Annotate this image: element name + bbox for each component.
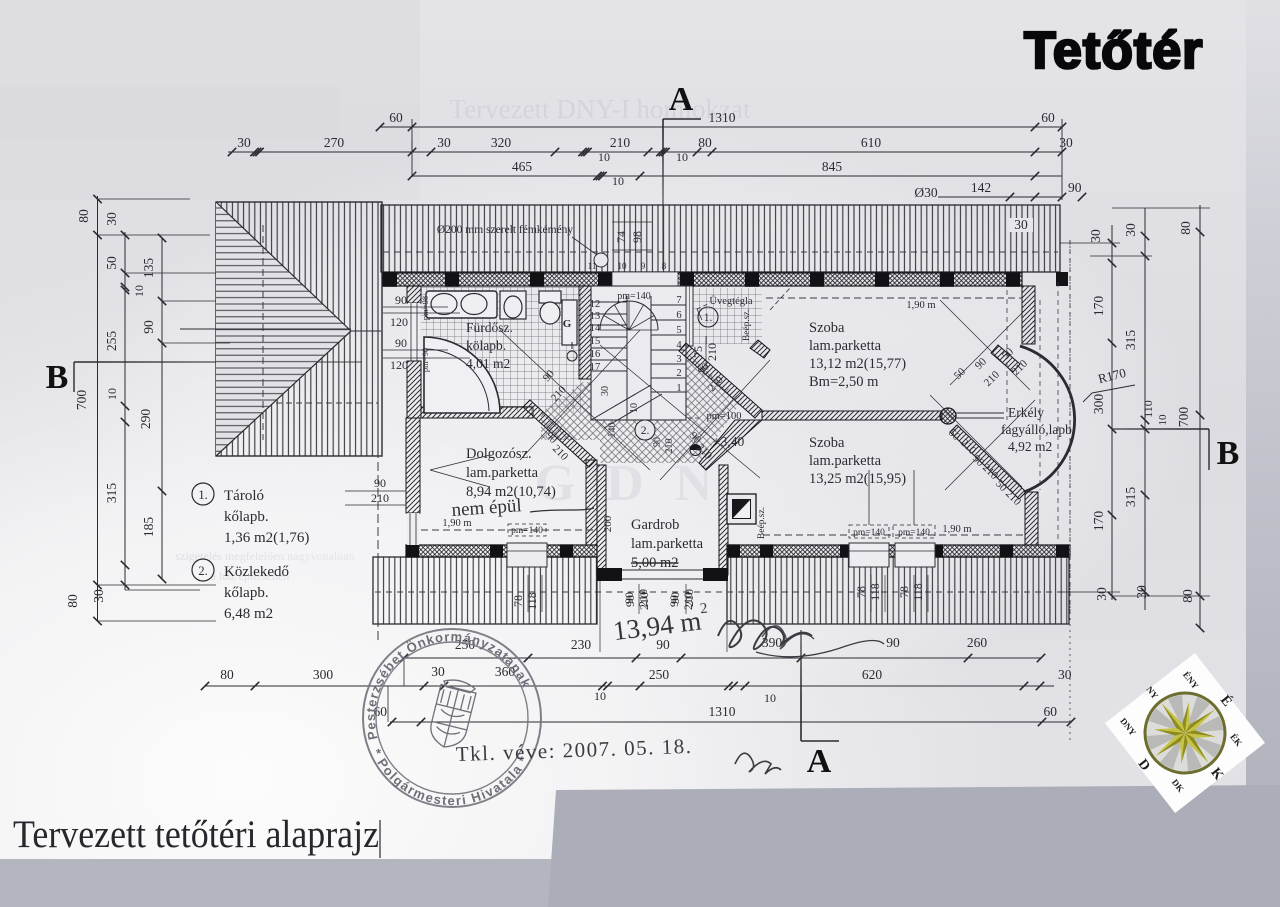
svg-text:210: 210 <box>371 491 389 505</box>
svg-text:30: 30 <box>1088 229 1103 243</box>
svg-text:170: 170 <box>1091 511 1106 532</box>
svg-text:Közlekedő: Közlekedő <box>224 564 289 580</box>
svg-text:Szoba: Szoba <box>809 435 845 451</box>
svg-text:30: 30 <box>237 135 251 150</box>
svg-text:5,00 m2: 5,00 m2 <box>631 555 679 571</box>
svg-text:pm=98: pm=98 <box>420 296 430 320</box>
svg-text:2.: 2. <box>198 564 207 578</box>
svg-text:pm=140: pm=140 <box>853 528 885 538</box>
svg-text:12: 12 <box>590 299 601 310</box>
svg-text:9: 9 <box>641 261 646 271</box>
svg-text:6,48 m2: 6,48 m2 <box>224 606 273 622</box>
svg-text:Ø200 mm szerelt fémkémény: Ø200 mm szerelt fémkémény <box>437 224 574 236</box>
svg-text:98: 98 <box>630 231 644 243</box>
svg-text:10: 10 <box>1157 414 1169 426</box>
svg-text:170: 170 <box>1091 296 1106 317</box>
svg-text:185: 185 <box>141 517 156 538</box>
svg-text:13: 13 <box>590 311 601 322</box>
svg-text:Tervezett DNY-I homlokzat: Tervezett DNY-I homlokzat <box>450 94 751 124</box>
svg-text:2.: 2. <box>641 425 650 437</box>
svg-text:30: 30 <box>1059 135 1073 150</box>
svg-text:10: 10 <box>618 261 628 271</box>
svg-text:1: 1 <box>676 383 681 394</box>
svg-text:620: 620 <box>862 667 883 682</box>
svg-text:142: 142 <box>971 180 991 195</box>
svg-text:30: 30 <box>91 589 106 603</box>
svg-text:80: 80 <box>65 594 80 608</box>
svg-text:80: 80 <box>76 209 91 223</box>
svg-text:10: 10 <box>132 285 146 297</box>
svg-text:845: 845 <box>822 159 843 174</box>
svg-text:30: 30 <box>437 135 451 150</box>
svg-text:30: 30 <box>1134 585 1149 599</box>
svg-text:pm=140: pm=140 <box>511 526 543 536</box>
svg-text:255: 255 <box>104 331 119 352</box>
svg-text:30: 30 <box>104 212 119 226</box>
svg-text:270: 270 <box>324 135 345 150</box>
svg-text:120: 120 <box>390 315 408 329</box>
svg-text:30: 30 <box>1123 223 1138 237</box>
svg-text:50: 50 <box>104 256 119 270</box>
svg-text:610: 610 <box>861 135 882 150</box>
svg-text:118: 118 <box>911 583 925 601</box>
svg-text:17: 17 <box>590 362 601 373</box>
svg-text:210: 210 <box>637 592 651 610</box>
svg-text:30: 30 <box>1094 587 1109 601</box>
svg-text:118: 118 <box>525 592 539 610</box>
svg-text:200: 200 <box>602 515 614 532</box>
svg-text:13,12 m2(15,77): 13,12 m2(15,77) <box>809 356 906 372</box>
svg-text:10: 10 <box>105 388 119 400</box>
svg-text:fagyálló,lapb.: fagyálló,lapb. <box>1001 422 1075 437</box>
svg-text:Szoba: Szoba <box>809 320 845 336</box>
svg-text:Bm=2,50 m: Bm=2,50 m <box>809 374 879 390</box>
svg-text:4,92 m2: 4,92 m2 <box>1008 439 1052 454</box>
svg-text:78: 78 <box>854 586 868 598</box>
svg-text:320: 320 <box>491 135 512 150</box>
svg-text:11: 11 <box>588 261 597 271</box>
svg-text:10: 10 <box>594 689 606 703</box>
svg-text:1.: 1. <box>704 312 713 324</box>
svg-text:pm=90: pm=90 <box>420 348 430 372</box>
svg-text:80: 80 <box>698 135 712 150</box>
svg-text:90: 90 <box>1068 180 1082 195</box>
svg-text:13,25 m2(15,95): 13,25 m2(15,95) <box>809 471 906 487</box>
svg-text:pm=100: pm=100 <box>706 411 741 422</box>
svg-text:250: 250 <box>649 667 670 682</box>
svg-text:Erkély: Erkély <box>1008 405 1044 420</box>
svg-text:16: 16 <box>590 349 601 360</box>
svg-text:A: A <box>807 743 832 780</box>
svg-text:kölapb.: kölapb. <box>466 338 506 353</box>
svg-text:80: 80 <box>1178 221 1193 235</box>
svg-text:G: G <box>563 318 572 330</box>
svg-text:10: 10 <box>764 691 776 705</box>
svg-text:lam.parketta: lam.parketta <box>809 338 882 354</box>
svg-text:Beép.sz.: Beép.sz. <box>757 507 767 539</box>
svg-text:+3,40: +3,40 <box>713 434 744 449</box>
svg-text:Tároló: Tároló <box>224 488 264 504</box>
svg-text:4,01 m2: 4,01 m2 <box>466 356 510 371</box>
svg-text:90: 90 <box>395 336 407 350</box>
svg-text:Beép.sz.: Beép.sz. <box>742 309 752 341</box>
svg-text:Ø30: Ø30 <box>914 185 937 200</box>
svg-text:60: 60 <box>1044 704 1058 719</box>
svg-text:118: 118 <box>868 583 882 601</box>
svg-text:110: 110 <box>1141 400 1155 418</box>
svg-text:10: 10 <box>676 150 688 164</box>
svg-text:Gardrob: Gardrob <box>631 517 679 533</box>
svg-text:90: 90 <box>623 595 637 607</box>
svg-text:7: 7 <box>676 295 681 306</box>
svg-text:90: 90 <box>667 595 681 607</box>
svg-text:1310: 1310 <box>709 110 736 125</box>
svg-text:pm=140: pm=140 <box>617 291 650 302</box>
svg-text:lam.parketta: lam.parketta <box>631 536 704 552</box>
svg-text:Tervezett tetőtéri alaprajz: Tervezett tetőtéri alaprajz <box>13 813 379 856</box>
svg-text:135: 135 <box>141 258 156 279</box>
svg-text:260: 260 <box>967 635 988 650</box>
svg-text:80: 80 <box>220 667 234 682</box>
svg-text:10: 10 <box>629 403 640 413</box>
svg-text:3: 3 <box>676 354 681 365</box>
svg-text:30: 30 <box>600 386 611 396</box>
svg-text:30: 30 <box>431 664 445 679</box>
svg-text:2: 2 <box>676 368 681 379</box>
svg-text:B: B <box>46 359 69 396</box>
svg-text:1,36 m2(1,76): 1,36 m2(1,76) <box>224 530 309 546</box>
svg-text:315: 315 <box>104 483 119 504</box>
svg-text:300: 300 <box>313 667 334 682</box>
svg-text:1,90 m: 1,90 m <box>942 524 971 535</box>
svg-text:Tetőtér: Tetőtér <box>1024 22 1203 80</box>
svg-text:10: 10 <box>598 150 610 164</box>
svg-text:315: 315 <box>1123 330 1138 351</box>
svg-text:60: 60 <box>389 110 403 125</box>
svg-text:6: 6 <box>676 310 681 321</box>
svg-text:700: 700 <box>1176 407 1191 428</box>
svg-text:10: 10 <box>612 174 624 188</box>
svg-text:Üvegtégla: Üvegtégla <box>709 295 752 307</box>
svg-text:pm=140: pm=140 <box>898 528 930 538</box>
svg-text:kőlapb.: kőlapb. <box>224 585 269 601</box>
svg-text:1,90 m: 1,90 m <box>906 300 935 311</box>
svg-text:kőlapb.: kőlapb. <box>224 509 269 525</box>
svg-text:1310: 1310 <box>709 704 736 719</box>
svg-text:90: 90 <box>395 293 407 307</box>
svg-text:78: 78 <box>511 595 525 607</box>
svg-text:14: 14 <box>590 323 601 334</box>
svg-text:Fürdősz.: Fürdősz. <box>466 320 513 335</box>
svg-text:290: 290 <box>138 409 153 430</box>
svg-text:300: 300 <box>1091 394 1106 415</box>
svg-text:60: 60 <box>1041 110 1055 125</box>
svg-text:78: 78 <box>897 586 911 598</box>
svg-text:lam.parketta: lam.parketta <box>809 453 882 469</box>
svg-text:230: 230 <box>571 637 592 652</box>
svg-text:210: 210 <box>610 135 631 150</box>
svg-text:465: 465 <box>512 159 533 174</box>
svg-text:Dolgozósz.: Dolgozósz. <box>466 446 532 462</box>
svg-text:315: 315 <box>1123 487 1138 508</box>
svg-text:700: 700 <box>74 390 89 411</box>
svg-text:210: 210 <box>705 343 719 361</box>
svg-text:90: 90 <box>374 476 386 490</box>
svg-text:15: 15 <box>590 336 601 347</box>
svg-text:120: 120 <box>390 358 408 372</box>
svg-text:90: 90 <box>141 320 156 334</box>
svg-text:90: 90 <box>886 635 900 650</box>
svg-text:74: 74 <box>614 231 628 243</box>
svg-text:1,90 m: 1,90 m <box>442 518 471 529</box>
svg-text:30: 30 <box>1014 217 1028 232</box>
svg-text:lam.parketta: lam.parketta <box>466 465 539 481</box>
svg-text:B: B <box>1217 435 1240 472</box>
svg-text:5: 5 <box>676 325 681 336</box>
svg-text:8: 8 <box>662 261 667 271</box>
svg-text:A: A <box>669 81 694 118</box>
svg-text:1.: 1. <box>198 488 207 502</box>
